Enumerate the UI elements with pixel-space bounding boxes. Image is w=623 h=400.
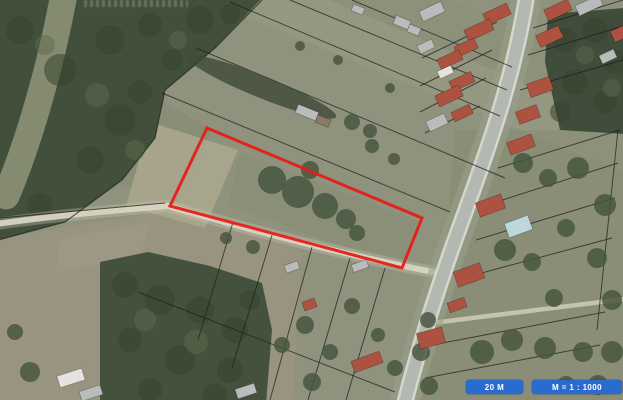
tree (274, 337, 290, 353)
forest-texture (161, 49, 183, 71)
tree (246, 240, 260, 254)
map-ratio-badge: M = 1 : 1000 (532, 380, 622, 394)
tree (7, 324, 23, 340)
tree (387, 360, 403, 376)
forest-texture (603, 79, 621, 97)
map-viewport: Aktiválja a Wind a Window 20 M M = 1 : 1… (0, 0, 623, 400)
tree (573, 342, 593, 362)
forest-texture (104, 104, 136, 136)
tree (220, 232, 232, 244)
forest-texture (582, 17, 608, 43)
tree (534, 337, 556, 359)
tree (20, 362, 40, 382)
scale-badge: 20 M (466, 380, 523, 394)
tree (594, 194, 616, 216)
forest-texture (125, 140, 145, 160)
tree (385, 83, 395, 93)
forest-texture (112, 272, 138, 298)
forest-texture (576, 46, 594, 64)
tree (295, 41, 305, 51)
tree (420, 377, 438, 395)
tree (388, 153, 400, 165)
forest-texture (562, 69, 588, 95)
tree (513, 153, 533, 173)
tree (365, 139, 379, 153)
tree (344, 298, 360, 314)
tree (258, 166, 286, 194)
tree (282, 176, 314, 208)
forest-texture (217, 357, 243, 383)
tree (470, 340, 494, 364)
forest-texture (550, 102, 570, 122)
tree (523, 253, 541, 271)
tree (333, 55, 343, 65)
satellite-map[interactable] (0, 0, 623, 400)
tree (344, 114, 360, 130)
tree (363, 124, 377, 138)
forest-texture (134, 309, 156, 331)
tree (336, 209, 356, 229)
forest-texture (138, 13, 162, 37)
tree (296, 316, 314, 334)
tree (601, 341, 623, 363)
forest-texture (85, 83, 109, 107)
forest-texture (184, 330, 208, 354)
forest-texture (44, 54, 76, 86)
tree (587, 248, 607, 268)
tree (420, 312, 436, 328)
tree (349, 225, 365, 241)
tree (539, 169, 557, 187)
forest-texture (95, 25, 125, 55)
forest-texture (35, 35, 55, 55)
forest-texture (118, 328, 142, 352)
tree (494, 239, 516, 261)
forest-texture (169, 31, 187, 49)
tree (557, 219, 575, 237)
tree (567, 157, 589, 179)
tree (501, 329, 523, 351)
tree (602, 290, 622, 310)
tree (322, 344, 338, 360)
forest-texture (128, 80, 152, 104)
tree (371, 328, 385, 342)
tree (312, 193, 338, 219)
tree (303, 373, 321, 391)
forest-texture (220, 4, 240, 24)
tree (545, 289, 563, 307)
forest-texture (6, 16, 34, 44)
forest-texture (186, 6, 214, 34)
forest-texture (76, 146, 104, 174)
